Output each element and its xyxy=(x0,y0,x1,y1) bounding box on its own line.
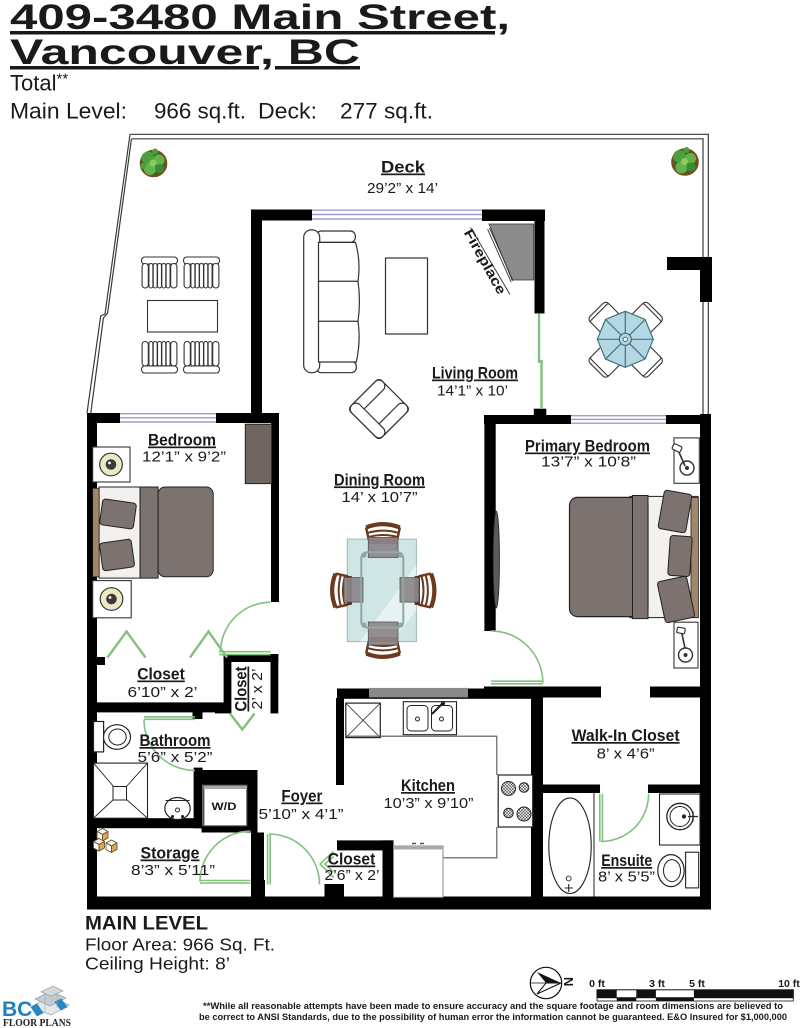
svg-text:Foyer: Foyer xyxy=(281,787,322,806)
svg-text:2’6” x 2’: 2’6” x 2’ xyxy=(325,867,380,884)
svg-text:14’1” x 10’: 14’1” x 10’ xyxy=(437,383,508,400)
svg-text:Ceiling Height: 8’: Ceiling Height: 8’ xyxy=(85,954,230,974)
svg-text:Bathroom: Bathroom xyxy=(140,731,211,750)
svg-text:6’10” x 2’: 6’10” x 2’ xyxy=(128,684,198,701)
svg-text:10’3” x 9’10”: 10’3” x 9’10” xyxy=(384,795,474,812)
svg-text:5 ft: 5 ft xyxy=(689,978,705,990)
svg-text:Ensuite: Ensuite xyxy=(601,851,652,870)
svg-text:Closet: Closet xyxy=(232,666,251,711)
svg-text:be correct to ANSI Standards,: be correct to ANSI Standards, due to the… xyxy=(199,1012,787,1022)
svg-text:**While all reasonable attempt: **While all reasonable attempts have bee… xyxy=(203,1001,784,1011)
svg-text:0 ft: 0 ft xyxy=(589,978,605,990)
svg-text:Kitchen: Kitchen xyxy=(401,776,455,795)
svg-text:Dining Room: Dining Room xyxy=(334,470,425,489)
svg-text:10 ft: 10 ft xyxy=(778,978,800,990)
svg-text:Vancouver, BC: Vancouver, BC xyxy=(10,33,360,72)
svg-text:Walk-In Closet: Walk-In Closet xyxy=(572,726,680,745)
svg-text:Living Room: Living Room xyxy=(432,364,518,383)
svg-text:3 ft: 3 ft xyxy=(649,978,665,990)
svg-text:8’ x 5’5”: 8’ x 5’5” xyxy=(598,869,655,886)
svg-text:Deck: Deck xyxy=(381,158,426,177)
svg-text:Bedroom: Bedroom xyxy=(148,431,216,450)
svg-text:W/D: W/D xyxy=(212,801,237,813)
svg-text:MAIN LEVEL: MAIN LEVEL xyxy=(85,913,208,935)
svg-text:966 sq.ft.: 966 sq.ft. xyxy=(154,99,246,124)
svg-text:409-3480 Main Street,: 409-3480 Main Street, xyxy=(10,0,510,37)
svg-text:Deck:: Deck: xyxy=(258,99,317,124)
svg-text:Main Level:: Main Level: xyxy=(10,99,127,124)
svg-text:8’3” x 5’11”: 8’3” x 5’11” xyxy=(131,862,215,879)
svg-text:277 sq.ft.: 277 sq.ft. xyxy=(340,99,433,124)
svg-text:2’ x 2’: 2’ x 2’ xyxy=(249,669,266,710)
svg-text:N: N xyxy=(561,977,576,986)
svg-text:Storage: Storage xyxy=(141,844,200,863)
svg-text:FLOOR PLANS: FLOOR PLANS xyxy=(3,1018,71,1028)
svg-text:8’ x 4’6”: 8’ x 4’6” xyxy=(597,746,655,763)
svg-text:13’7” x 10’8”: 13’7” x 10’8” xyxy=(541,454,636,471)
svg-text:14’ x 10’7”: 14’ x 10’7” xyxy=(342,489,418,506)
svg-text:Floor Area: 966 Sq. Ft.: Floor Area: 966 Sq. Ft. xyxy=(85,935,275,955)
svg-text:Closet: Closet xyxy=(137,665,185,684)
svg-text:12’1” x 9’2”: 12’1” x 9’2” xyxy=(142,449,226,466)
svg-text:29’2” x 14’: 29’2” x 14’ xyxy=(367,180,438,197)
svg-text:5’10” x 4’1”: 5’10” x 4’1” xyxy=(259,806,344,823)
svg-text:Closet: Closet xyxy=(328,850,376,869)
svg-text:5’6” x 5’2”: 5’6” x 5’2” xyxy=(138,749,213,766)
